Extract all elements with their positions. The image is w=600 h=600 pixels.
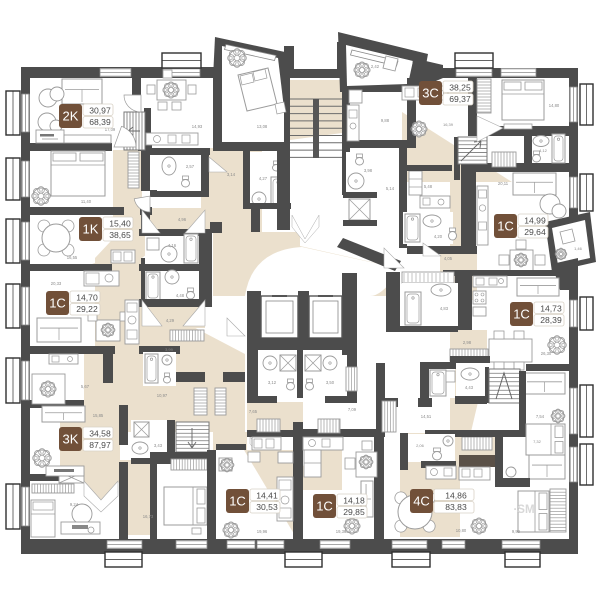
- svg-text:5,67: 5,67: [81, 384, 90, 389]
- svg-text:26,30: 26,30: [541, 351, 552, 356]
- svg-text:3,14: 3,14: [227, 172, 236, 177]
- svg-text:68,39: 68,39: [89, 117, 111, 127]
- svg-text:16,39: 16,39: [443, 122, 454, 127]
- svg-text:4,48: 4,48: [176, 293, 185, 298]
- svg-text:10,97: 10,97: [157, 393, 168, 398]
- svg-text:87,97: 87,97: [89, 440, 111, 450]
- svg-text:1C: 1C: [513, 307, 530, 322]
- svg-text:20,33: 20,33: [51, 281, 62, 286]
- svg-text:4C: 4C: [413, 494, 430, 509]
- svg-text:38,25: 38,25: [449, 83, 471, 93]
- svg-text:20,11: 20,11: [498, 181, 509, 186]
- svg-text:16,55: 16,55: [67, 255, 78, 260]
- svg-text:3C: 3C: [422, 86, 439, 101]
- svg-text:7,65: 7,65: [249, 409, 258, 414]
- svg-text:30,97: 30,97: [89, 106, 111, 116]
- svg-text:2K: 2K: [63, 109, 79, 124]
- svg-text:7,32: 7,32: [533, 439, 542, 444]
- svg-text:14,70: 14,70: [76, 293, 98, 303]
- svg-text:14,80: 14,80: [549, 103, 560, 108]
- svg-text:14,51: 14,51: [421, 414, 432, 419]
- svg-text:4,20: 4,20: [434, 234, 443, 239]
- svg-text:4,96: 4,96: [178, 217, 187, 222]
- svg-text:4,16: 4,16: [168, 243, 177, 248]
- svg-text:4,43: 4,43: [465, 385, 474, 390]
- svg-text:3,99: 3,99: [165, 347, 174, 352]
- svg-text:9,88: 9,88: [381, 118, 390, 123]
- svg-text:28,39: 28,39: [540, 315, 562, 325]
- svg-text:2,98: 2,98: [463, 340, 472, 345]
- svg-text:7,54: 7,54: [536, 414, 545, 419]
- svg-text:1C: 1C: [49, 296, 66, 311]
- svg-text:83,83: 83,83: [445, 502, 467, 512]
- svg-text:5,14: 5,14: [386, 186, 395, 191]
- svg-text:·SM: ·SM: [513, 504, 534, 516]
- svg-text:3,12: 3,12: [268, 380, 277, 385]
- svg-text:2,42: 2,42: [371, 64, 380, 69]
- svg-text:13,08: 13,08: [257, 124, 268, 129]
- svg-text:2,06: 2,06: [416, 443, 425, 448]
- svg-text:4,83: 4,83: [440, 306, 449, 311]
- svg-text:29,85: 29,85: [343, 507, 365, 517]
- svg-text:3K: 3K: [63, 432, 79, 447]
- svg-text:3,43: 3,43: [154, 443, 163, 448]
- svg-text:14,41: 14,41: [256, 491, 278, 501]
- svg-text:7,09: 7,09: [348, 407, 357, 412]
- svg-text:19,96: 19,96: [257, 529, 268, 534]
- svg-text:69,37: 69,37: [449, 94, 471, 104]
- svg-text:4,12: 4,12: [539, 148, 548, 153]
- svg-text:14,73: 14,73: [540, 304, 562, 314]
- svg-text:14,86: 14,86: [445, 491, 467, 501]
- svg-text:30,53: 30,53: [256, 502, 278, 512]
- svg-text:2,57: 2,57: [186, 164, 195, 169]
- svg-text:14,99: 14,99: [524, 216, 546, 226]
- svg-text:34,58: 34,58: [89, 429, 111, 439]
- svg-text:14,18: 14,18: [343, 496, 365, 506]
- svg-text:3,50: 3,50: [326, 380, 335, 385]
- svg-text:4,27: 4,27: [259, 176, 268, 181]
- svg-text:10,80: 10,80: [456, 528, 467, 533]
- svg-text:4,05: 4,05: [444, 256, 453, 261]
- svg-text:1C: 1C: [229, 494, 246, 509]
- svg-text:16,73: 16,73: [143, 514, 154, 519]
- svg-text:14,93: 14,93: [192, 124, 203, 129]
- svg-text:3,98: 3,98: [364, 168, 373, 173]
- svg-text:1C: 1C: [497, 219, 514, 234]
- svg-text:29,22: 29,22: [76, 304, 98, 314]
- svg-text:9,99: 9,99: [512, 529, 521, 534]
- svg-text:9,24: 9,24: [70, 502, 79, 507]
- svg-text:4,29: 4,29: [166, 318, 175, 323]
- svg-text:5,48: 5,48: [424, 184, 433, 189]
- svg-text:11,40: 11,40: [81, 199, 92, 204]
- svg-text:1C: 1C: [316, 499, 333, 514]
- svg-text:15,85: 15,85: [93, 413, 104, 418]
- svg-text:38,65: 38,65: [109, 230, 131, 240]
- svg-text:1K: 1K: [83, 222, 99, 237]
- svg-text:29,64: 29,64: [524, 227, 546, 237]
- svg-text:15,40: 15,40: [109, 219, 131, 229]
- svg-text:1,46: 1,46: [574, 246, 583, 251]
